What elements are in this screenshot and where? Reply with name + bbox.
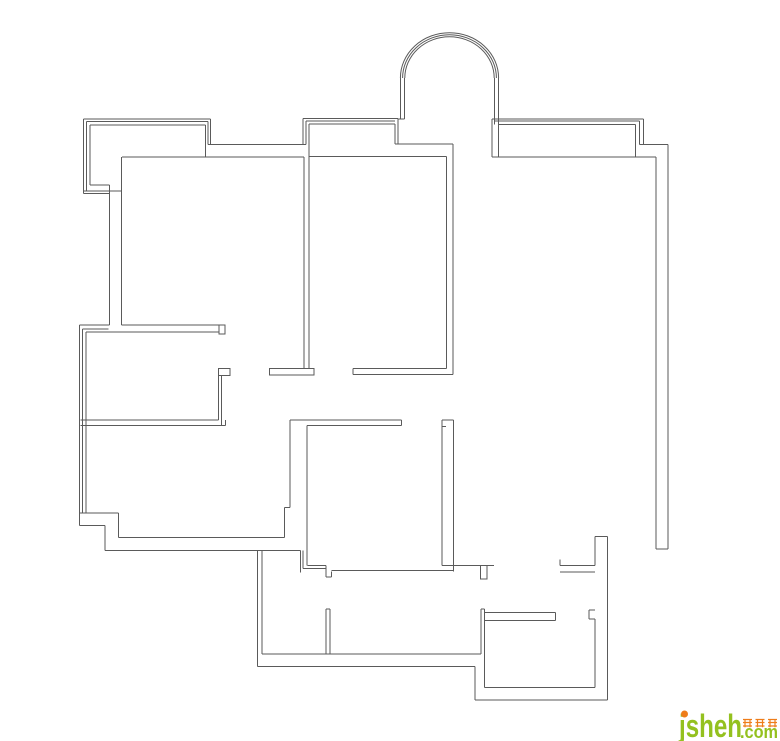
- svg-text:.com: .com: [740, 722, 778, 741]
